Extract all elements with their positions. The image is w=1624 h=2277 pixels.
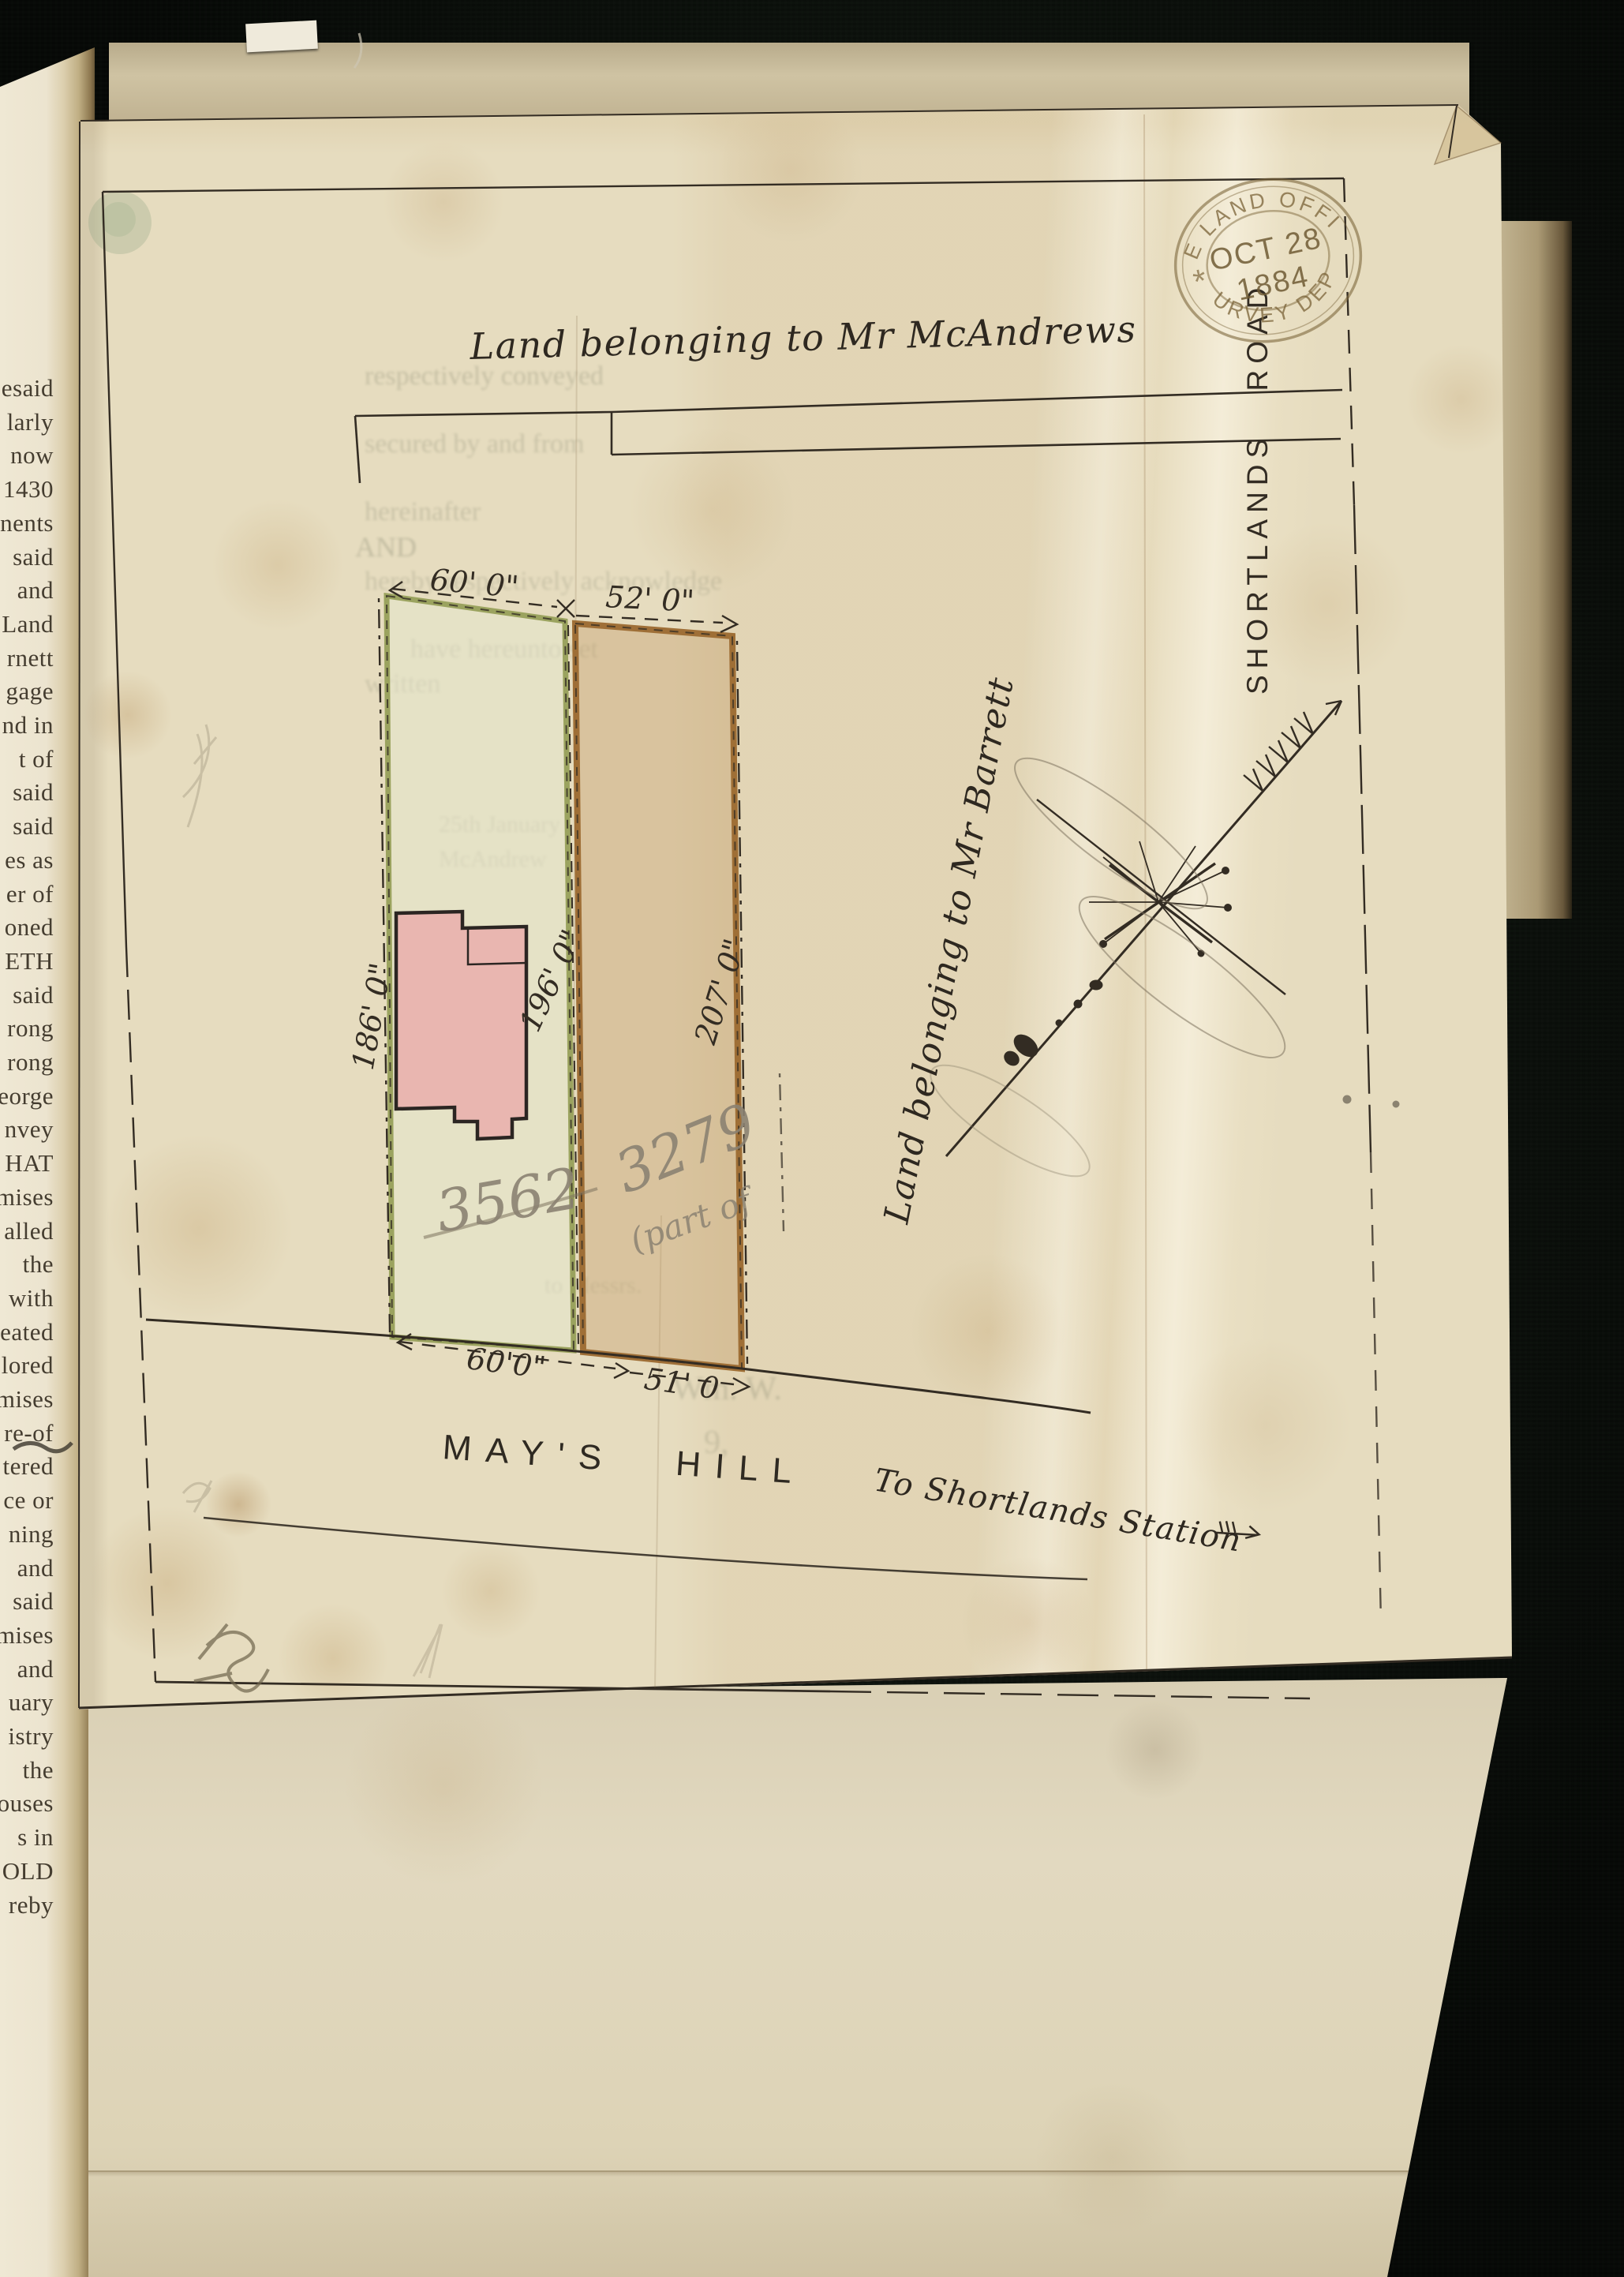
- label-owner-east: Land belonging to Mr Barrett: [877, 673, 1023, 1227]
- dim-top-right: 52' 0": [604, 579, 695, 619]
- compass-ray-dots: [1100, 867, 1232, 957]
- dim-top-left: 60' 0": [428, 562, 520, 605]
- ink-specks: [1343, 1095, 1399, 1107]
- building-footprint: [396, 912, 526, 1139]
- block-boundary-lines: [355, 390, 1342, 483]
- label-station-note: To Shortlands Station: [871, 1462, 1244, 1559]
- map-drawing: Land belonging to Mr McAndrews Land belo…: [0, 0, 1624, 2277]
- seal-smudge: [88, 191, 152, 254]
- label-shortlands-road: SHORTLANDS ROAD: [1241, 282, 1274, 695]
- folded-corner: [1435, 106, 1501, 164]
- pencil-scribbles: [13, 33, 442, 1691]
- north-arrow-feathers: [1244, 701, 1341, 791]
- label-owner-top: Land belonging to Mr McAndrews: [469, 308, 1137, 368]
- book-cover: { "left_page_fragments": [ "esaid","larl…: [0, 0, 1624, 2277]
- label-mays-hill: MAY'S HILL: [441, 1428, 806, 1492]
